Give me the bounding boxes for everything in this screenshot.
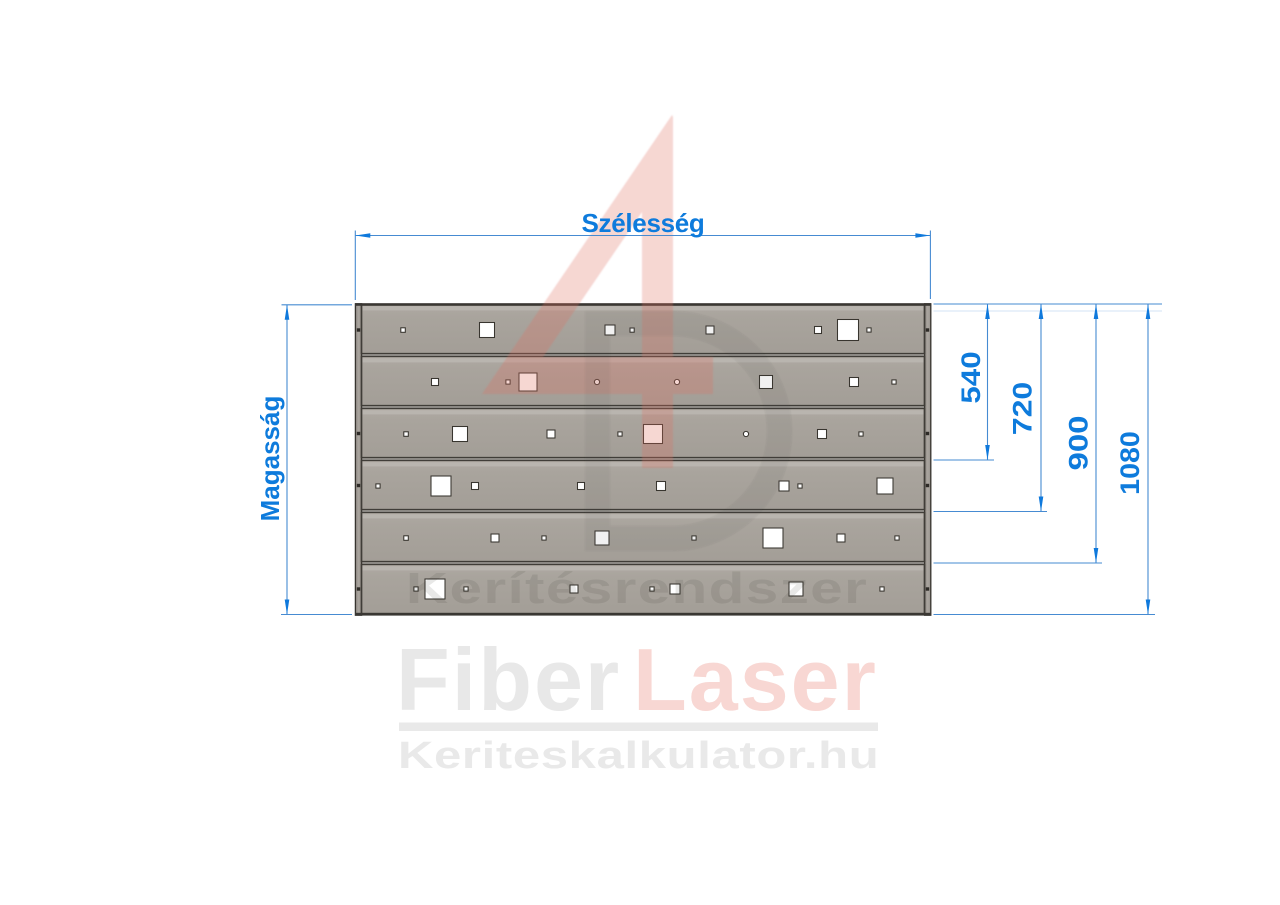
svg-text:720: 720 [1008,382,1038,436]
svg-text:Szélesség: Szélesség [581,208,704,238]
svg-text:900: 900 [1064,416,1094,471]
svg-text:Kerítésrendszer: Kerítésrendszer [406,563,868,612]
svg-text:Laser: Laser [633,630,878,729]
svg-text:Magasság: Magasság [255,396,285,522]
svg-text:1080: 1080 [1115,431,1145,495]
svg-text:Fiber: Fiber [396,630,621,729]
svg-text:Keriteskalkulator.hu: Keriteskalkulator.hu [398,734,879,776]
svg-text:540: 540 [957,351,987,403]
